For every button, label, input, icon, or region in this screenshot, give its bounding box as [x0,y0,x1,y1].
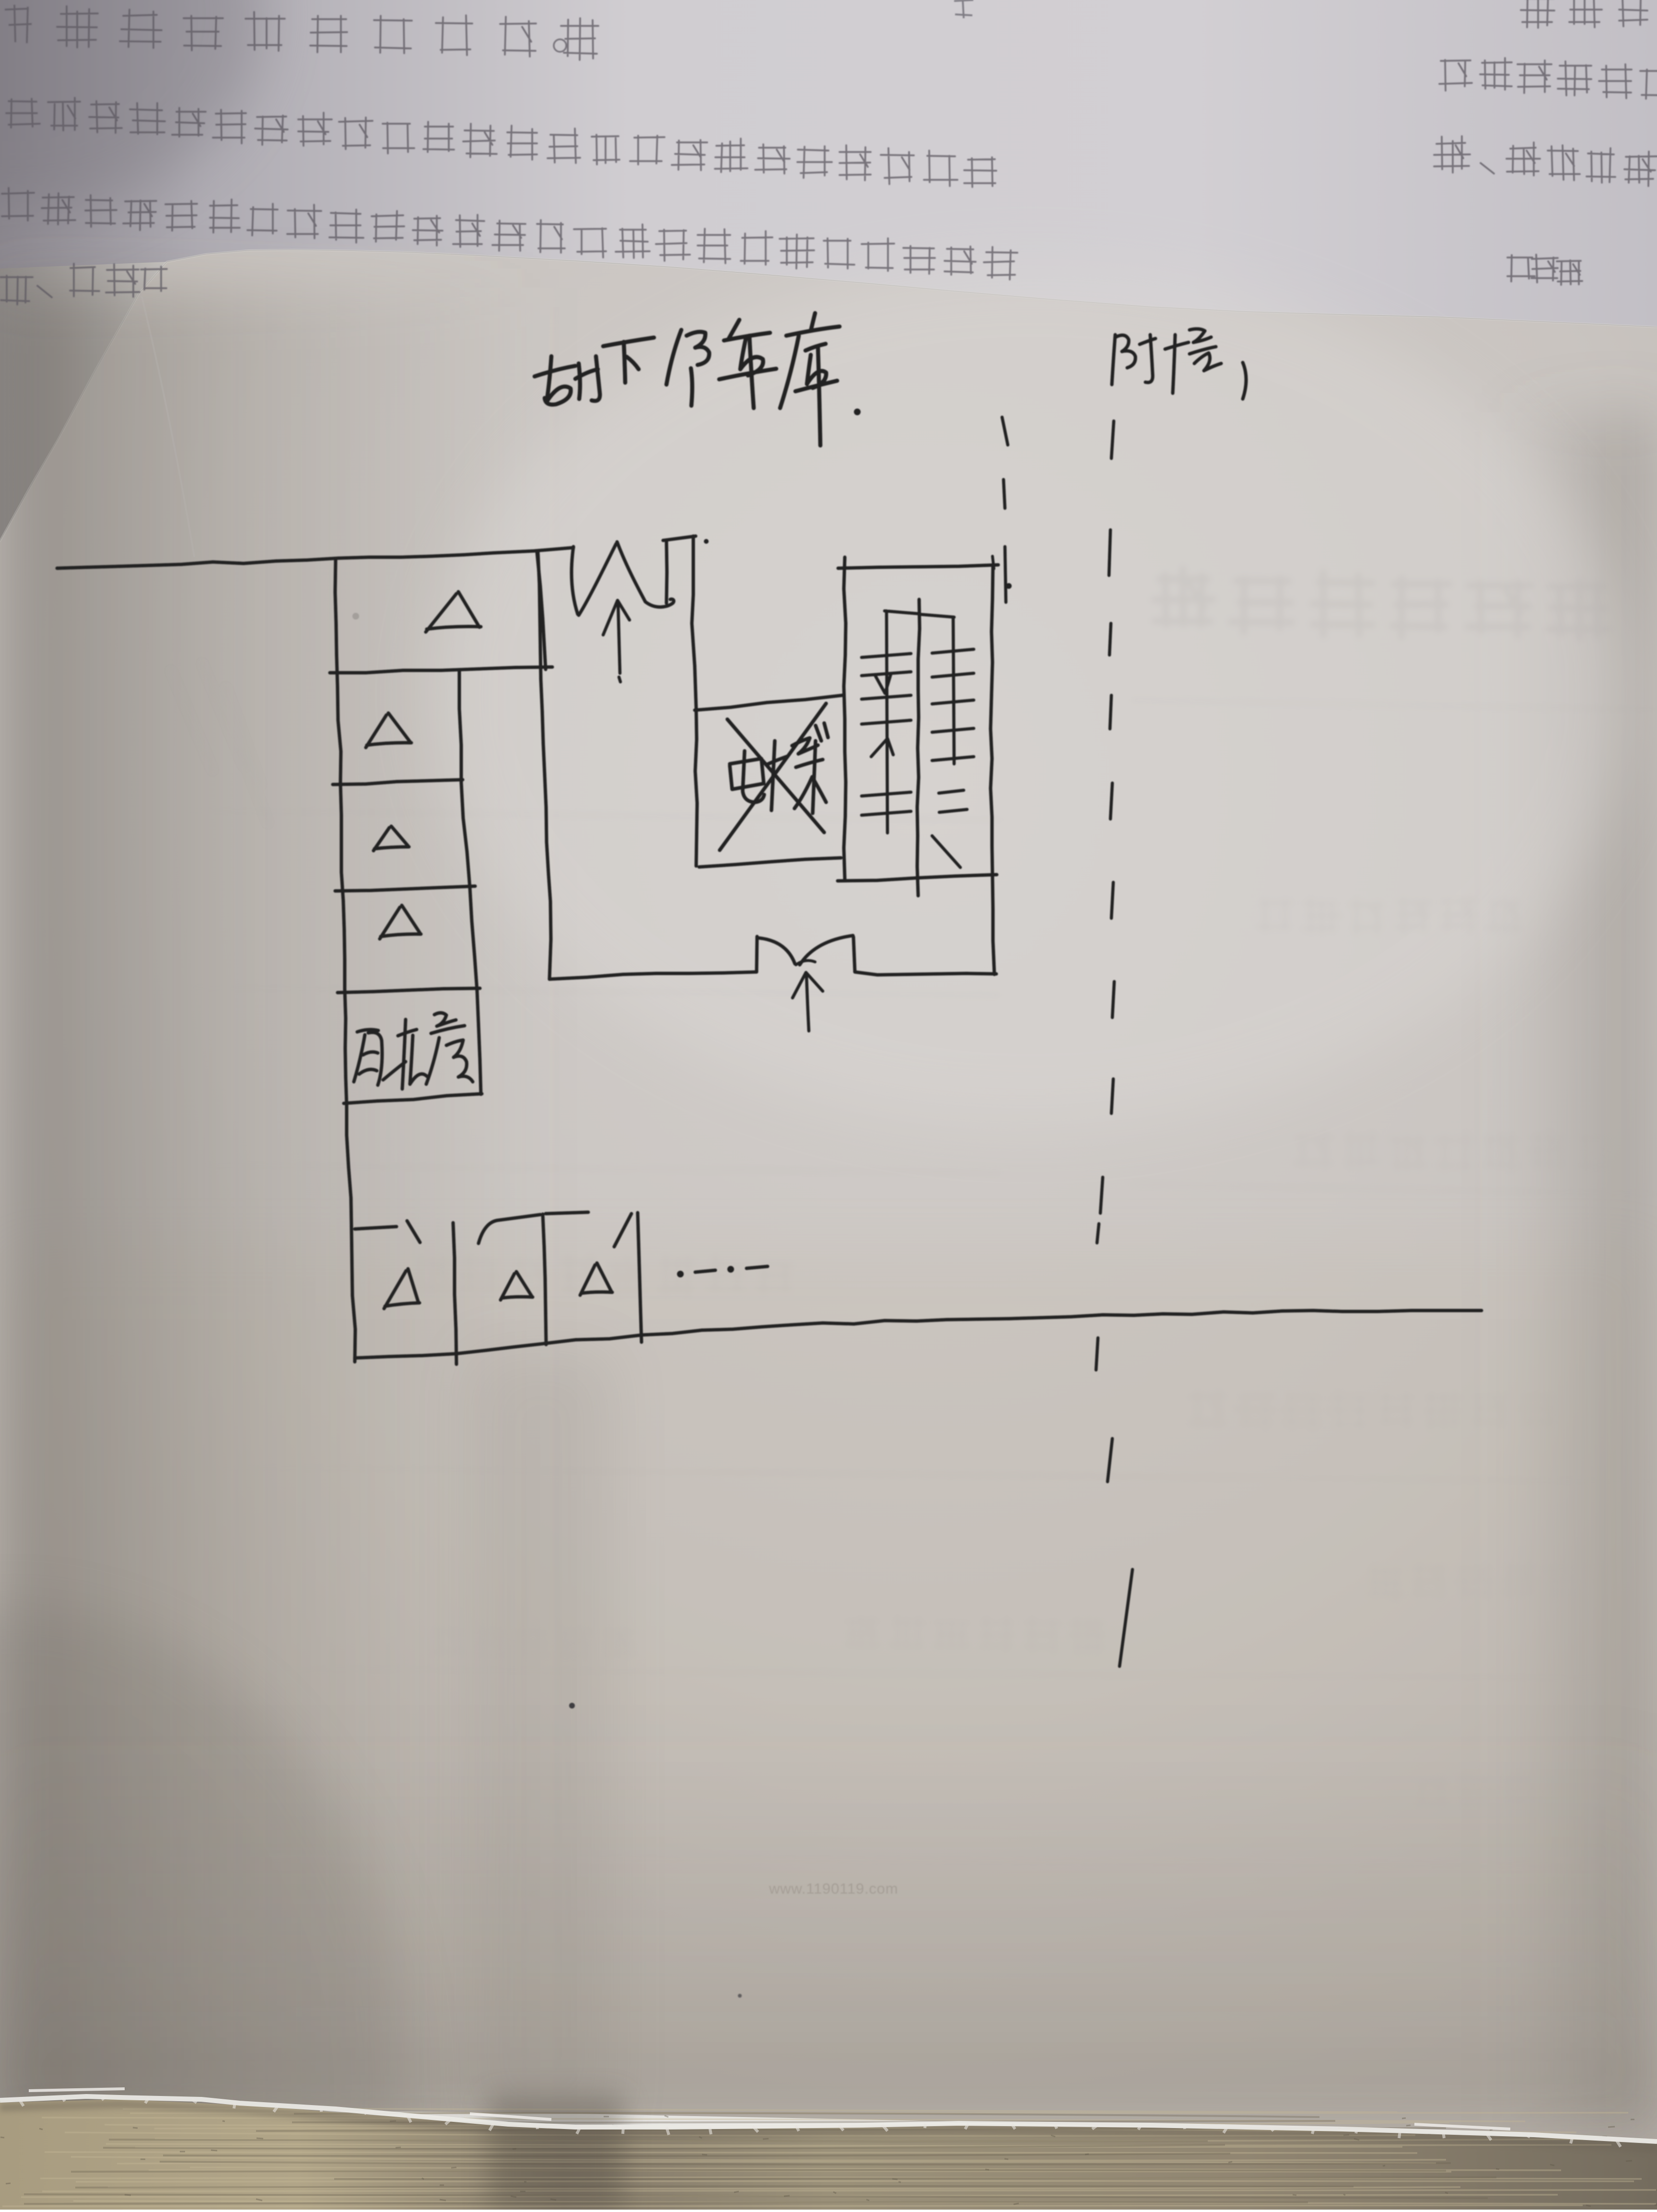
svg-text:www.1190119.com: www.1190119.com [769,1880,898,1897]
